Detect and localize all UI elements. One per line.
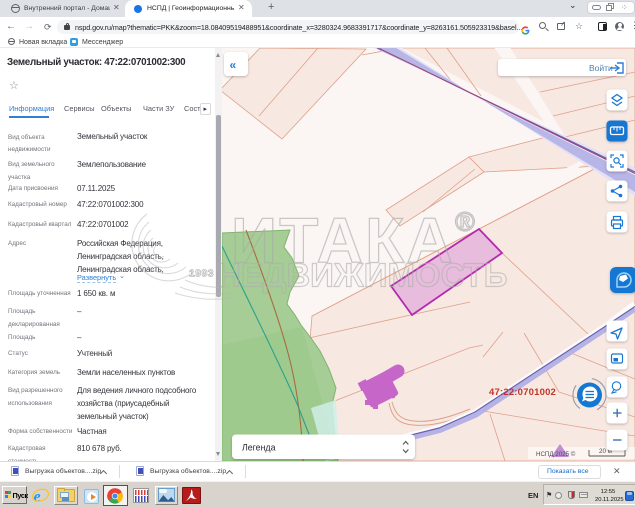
svg-text:47:22:0701002: 47:22:0701002 xyxy=(489,387,556,398)
svg-text:Войти: Войти xyxy=(589,63,613,73)
svg-text:НСПД 2025 ©: НСПД 2025 © xyxy=(536,451,576,458)
svg-text:«: « xyxy=(230,58,237,72)
svg-text:Легенда: Легенда xyxy=(242,443,276,453)
